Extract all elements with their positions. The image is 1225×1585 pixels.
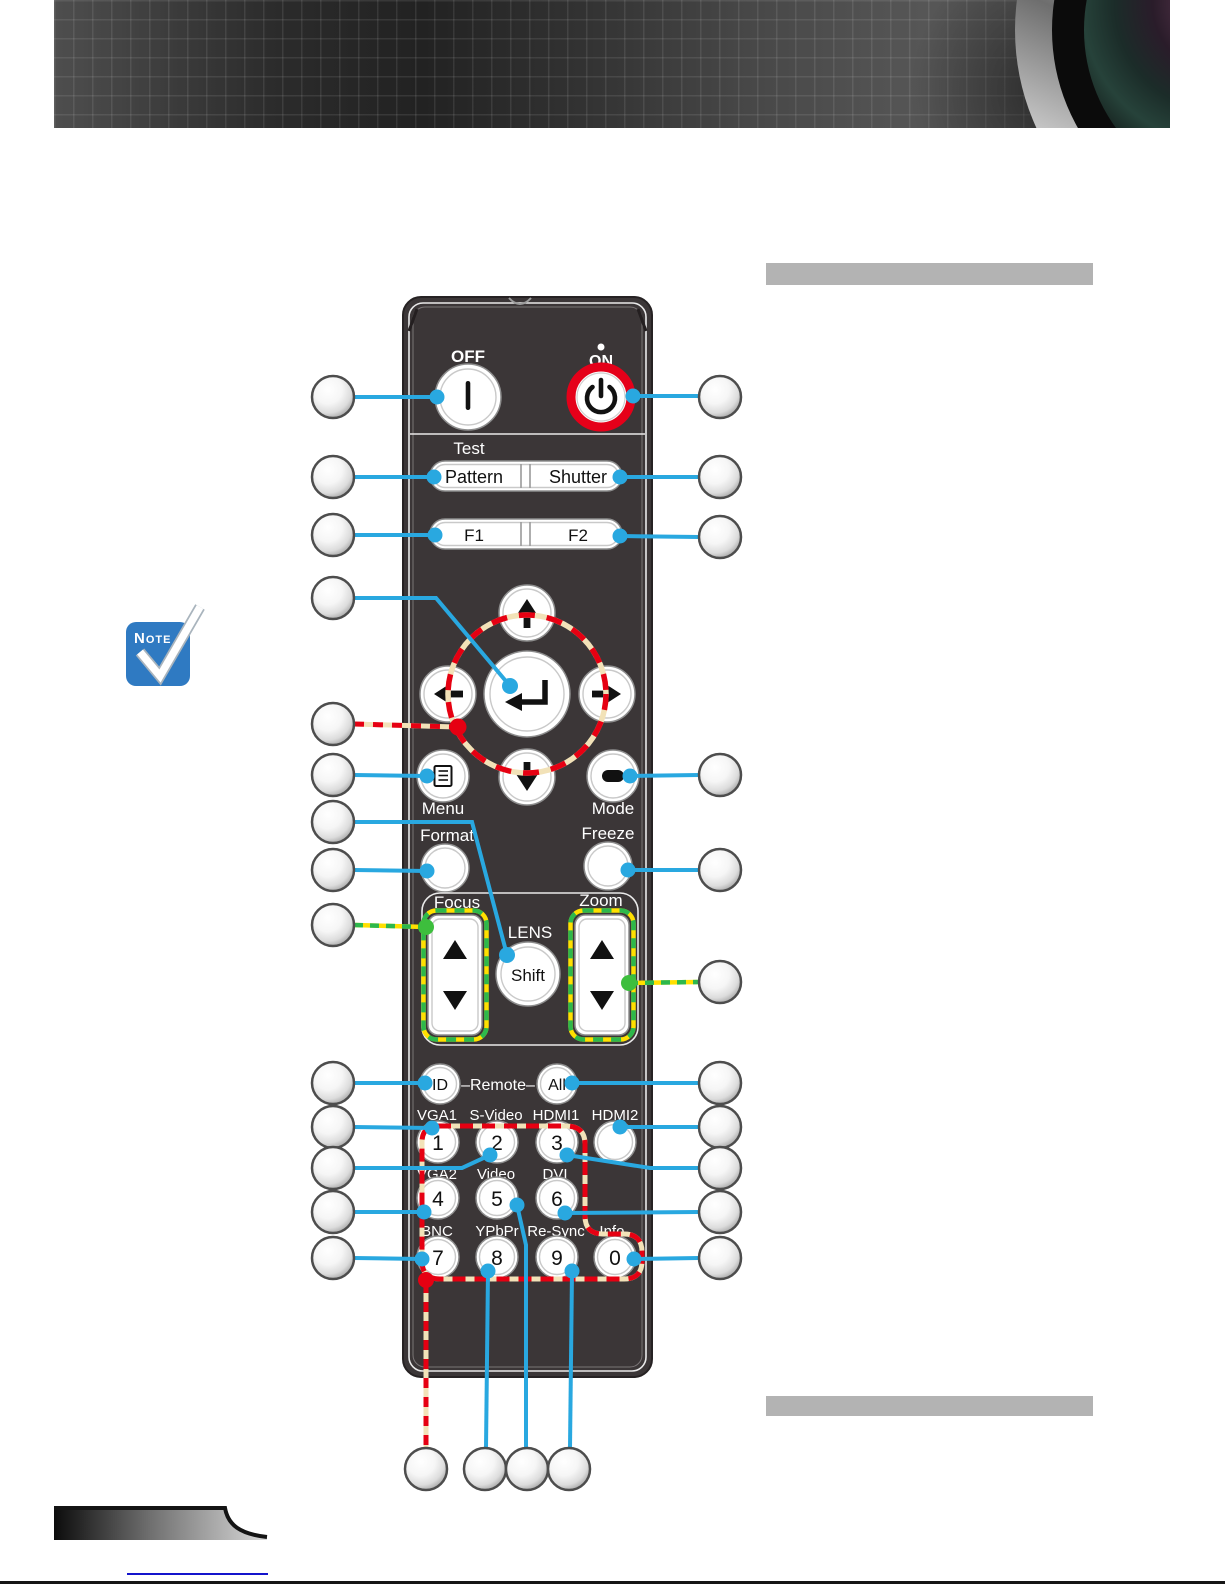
left-arrow-stem xyxy=(451,691,463,698)
zoom-rocker-face xyxy=(575,915,629,1035)
all-button-label: All xyxy=(548,1077,566,1094)
mode-icon xyxy=(602,770,624,782)
line-bnc xyxy=(354,1258,422,1259)
focus-rocker-face xyxy=(428,915,482,1035)
lens-label: LENS xyxy=(508,923,552,942)
f1-f2-pill xyxy=(430,519,622,549)
menu-button: Menu xyxy=(417,750,469,818)
dot-ypbpr xyxy=(481,1264,496,1279)
callout-pattern xyxy=(312,456,354,498)
dot-off xyxy=(430,390,445,405)
line-format xyxy=(354,870,427,871)
dot-zoom xyxy=(621,975,637,991)
line-focus xyxy=(354,925,426,927)
remote-control-diagram: OFF ON Test Pattern Shutter xyxy=(0,0,1225,1585)
callout-enter xyxy=(312,577,354,619)
dot-dpad-circle xyxy=(450,719,467,736)
dot-lens-shift xyxy=(499,947,515,963)
menu-label: Menu xyxy=(422,799,465,818)
footer-page-tab xyxy=(50,1502,275,1546)
callout-vga2 xyxy=(312,1191,354,1233)
callout-dvi xyxy=(699,1191,741,1233)
line-menu xyxy=(354,775,427,776)
dot-vga2 xyxy=(417,1205,432,1220)
hyperlink-underline[interactable] xyxy=(127,1573,268,1575)
callout-info xyxy=(699,1237,741,1279)
dot-freeze xyxy=(621,863,636,878)
dot-format xyxy=(420,864,435,879)
dot-info xyxy=(627,1252,642,1267)
dot-enter xyxy=(502,678,518,694)
enter-button xyxy=(484,651,570,737)
dot-f1 xyxy=(428,528,443,543)
callout-ypbpr xyxy=(464,1448,506,1490)
callout-vga1 xyxy=(312,1106,354,1148)
callout-shutter xyxy=(699,456,741,498)
right-arrow-stem xyxy=(592,691,604,698)
callout-video xyxy=(506,1448,548,1490)
callout-menu xyxy=(312,754,354,796)
pattern-shutter-buttons: Pattern Shutter xyxy=(430,461,622,491)
callout-hdmi2 xyxy=(699,1106,741,1148)
key-7-label: 7 xyxy=(432,1247,444,1270)
callout-f1 xyxy=(312,514,354,556)
callout-f2 xyxy=(699,516,741,558)
dot-menu xyxy=(420,769,435,784)
f1-button-label: F1 xyxy=(464,526,484,545)
callout-hdmi1 xyxy=(699,1147,741,1189)
dot-id xyxy=(418,1076,433,1091)
page-bottom-rule xyxy=(0,1581,1225,1584)
line-zoom xyxy=(629,982,699,983)
line-re-sync-down xyxy=(570,1271,572,1448)
pattern-button-label: Pattern xyxy=(445,467,503,487)
callout-s-video xyxy=(312,1147,354,1189)
zoom-rocker xyxy=(575,915,629,1035)
dot-hdmi1 xyxy=(560,1148,575,1163)
callout-lens-shift xyxy=(312,801,354,843)
line-f2 xyxy=(620,536,699,537)
id-button-label: ID xyxy=(432,1077,448,1094)
callout-all xyxy=(699,1062,741,1104)
dot-focus xyxy=(418,919,434,935)
menu-icon xyxy=(435,766,452,786)
callout-keypad xyxy=(405,1448,447,1490)
dot-all xyxy=(565,1076,580,1091)
freeze-button: Freeze xyxy=(582,824,635,890)
callout-focus xyxy=(312,904,354,946)
key-1-label: 1 xyxy=(432,1132,444,1155)
callout-zoom xyxy=(699,961,741,1003)
dot-shutter xyxy=(613,470,628,485)
callout-off xyxy=(312,376,354,418)
mode-button: Mode xyxy=(587,750,639,818)
dot-vga1 xyxy=(425,1121,440,1136)
line-info xyxy=(634,1258,699,1259)
up-arrow-stem xyxy=(524,616,531,628)
callout-format xyxy=(312,849,354,891)
freeze-label: Freeze xyxy=(582,824,635,843)
test-label: Test xyxy=(453,439,484,458)
dot-re-sync xyxy=(565,1264,580,1279)
zoom-label: Zoom xyxy=(579,891,622,910)
line-dvi xyxy=(565,1212,699,1213)
focus-rocker xyxy=(428,915,482,1035)
dot-hdmi2 xyxy=(613,1120,628,1135)
shutter-button-label: Shutter xyxy=(549,467,607,487)
shift-label: Shift xyxy=(511,966,545,985)
key-5-label: 5 xyxy=(491,1188,503,1211)
callout-bnc xyxy=(312,1237,354,1279)
off-bar-icon xyxy=(466,381,471,410)
manual-page: Note OFF xyxy=(0,0,1225,1585)
mode-label: Mode xyxy=(592,799,635,818)
callout-re-sync xyxy=(548,1448,590,1490)
dot-on xyxy=(626,389,641,404)
dot-s-video xyxy=(483,1148,498,1163)
f2-button-label: F2 xyxy=(568,526,588,545)
callout-on xyxy=(699,376,741,418)
dot-keypad xyxy=(418,1272,434,1288)
f1-f2-buttons: F1 F2 xyxy=(430,519,622,549)
key-0-label: 0 xyxy=(609,1247,621,1270)
line-vga1 xyxy=(354,1127,432,1128)
line-ypbpr-down xyxy=(486,1271,488,1448)
callout-id xyxy=(312,1062,354,1104)
line-dpad-circle xyxy=(354,724,456,727)
on-indicator-dot xyxy=(598,344,605,351)
dot-dvi xyxy=(558,1206,573,1221)
callout-freeze xyxy=(699,849,741,891)
callout-dpad-circle xyxy=(312,703,354,745)
dot-video xyxy=(510,1198,525,1213)
remote-group-label: –Remote– xyxy=(461,1077,535,1094)
dot-pattern xyxy=(427,470,442,485)
off-label: OFF xyxy=(451,347,485,366)
key-9-label: 9 xyxy=(551,1247,563,1270)
dot-f2 xyxy=(613,529,628,544)
callout-mode xyxy=(699,754,741,796)
dot-mode xyxy=(623,769,638,784)
key-4-label: 4 xyxy=(432,1188,444,1211)
dot-bnc xyxy=(415,1252,430,1267)
line-mode xyxy=(630,775,699,776)
format-label: Format xyxy=(420,826,474,845)
